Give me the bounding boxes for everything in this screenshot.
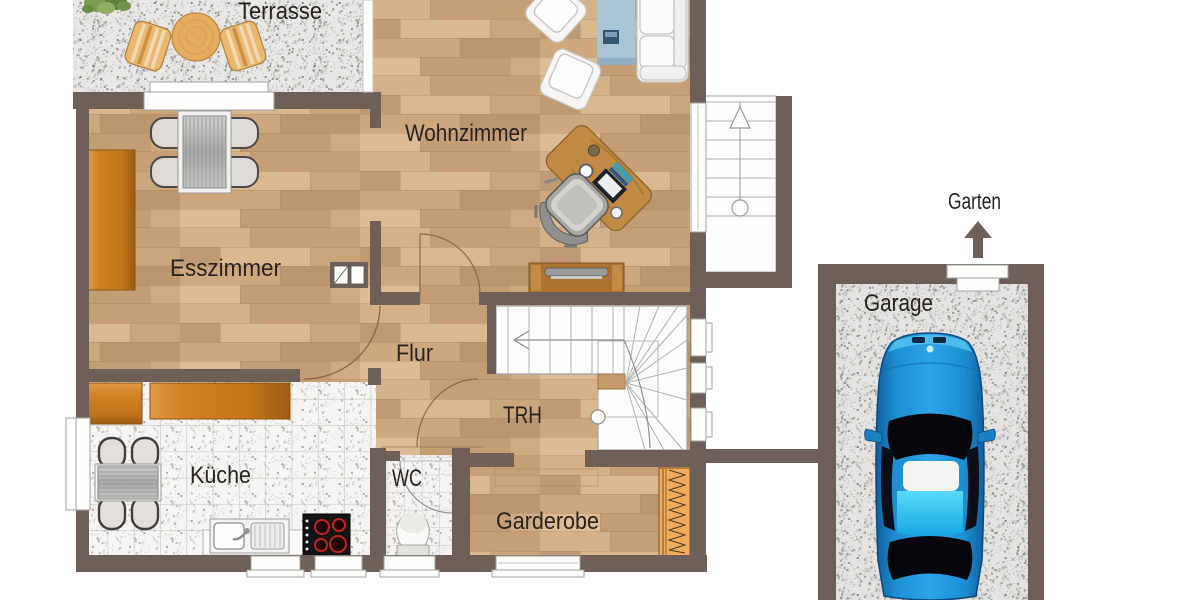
svg-text:Esszimmer: Esszimmer bbox=[170, 255, 281, 282]
svg-text:Wohnzimmer: Wohnzimmer bbox=[405, 120, 527, 147]
svg-text:TRH: TRH bbox=[503, 402, 542, 429]
svg-text:Flur: Flur bbox=[396, 340, 433, 367]
svg-text:Küche: Küche bbox=[190, 462, 251, 489]
svg-text:Garten: Garten bbox=[948, 188, 1001, 214]
svg-text:Terrasse: Terrasse bbox=[238, 0, 322, 25]
svg-text:Garage: Garage bbox=[864, 290, 933, 317]
svg-text:WC: WC bbox=[392, 465, 422, 492]
svg-text:Garderobe: Garderobe bbox=[496, 508, 599, 535]
